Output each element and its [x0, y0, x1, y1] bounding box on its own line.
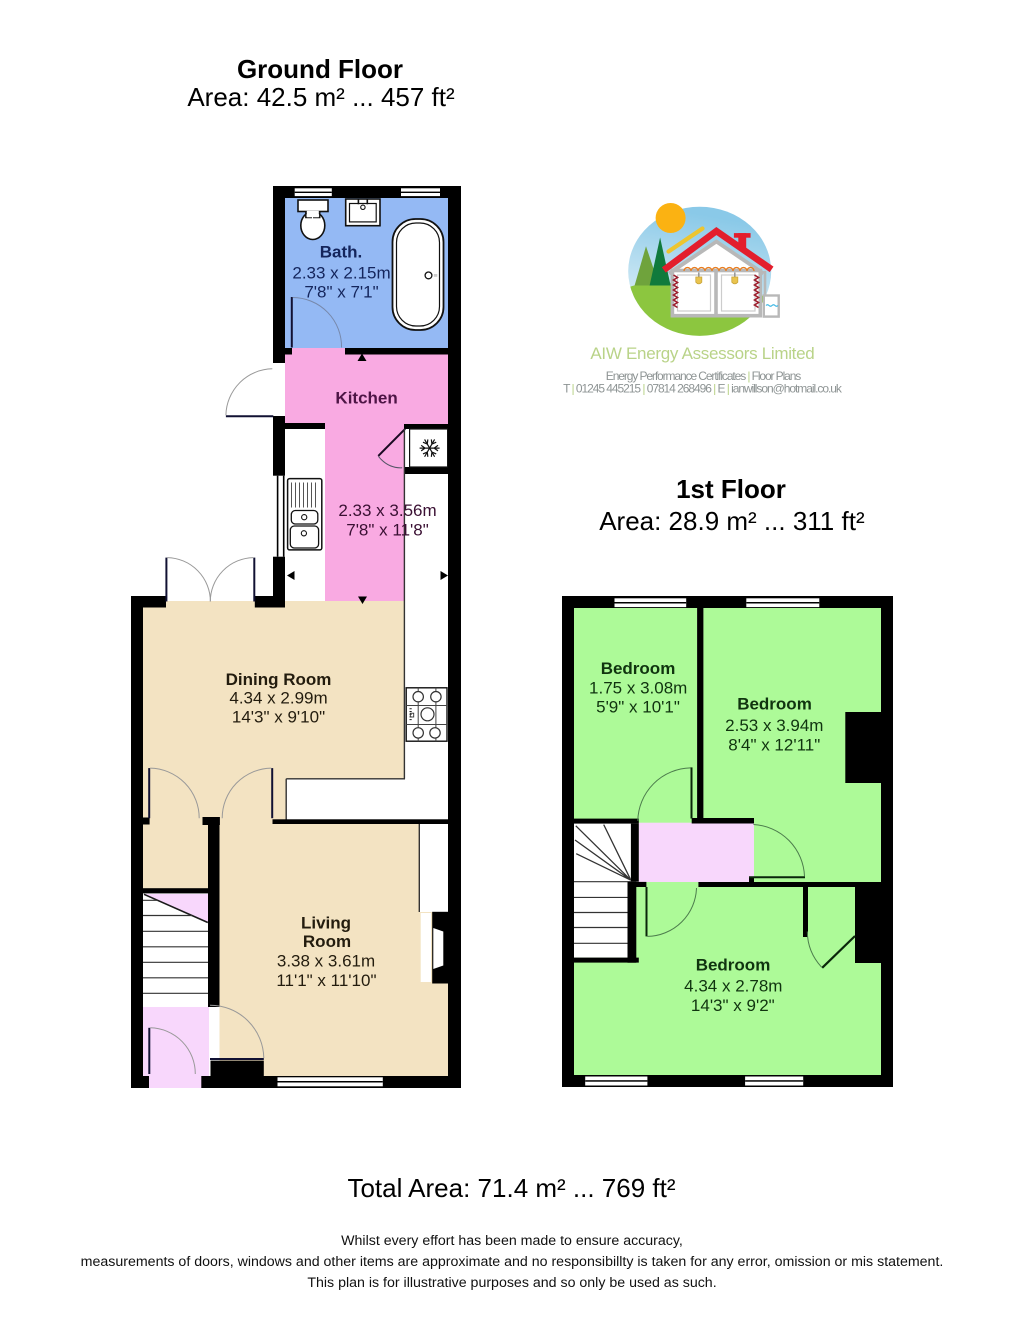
svg-text:Bedroom: Bedroom: [696, 956, 771, 975]
svg-text:Whilst every effort has been m: Whilst every effort has been made to ens…: [341, 1233, 683, 1249]
svg-text:2.53 x 3.94m: 2.53 x 3.94m: [725, 716, 823, 735]
svg-text:Area: 28.9 m² ... 311 ft²: Area: 28.9 m² ... 311 ft²: [599, 506, 865, 536]
svg-text:3.38 x 3.61m: 3.38 x 3.61m: [277, 952, 375, 971]
svg-text:measurements of doors, windows: measurements of doors, windows and other…: [81, 1254, 944, 1270]
svg-text:14'3" x 9'10": 14'3" x 9'10": [232, 708, 325, 727]
svg-text:8'4" x 12'11": 8'4" x 12'11": [728, 735, 820, 754]
svg-text:11'1" x 11'10": 11'1" x 11'10": [276, 971, 376, 990]
svg-text:5'9" x 10'1": 5'9" x 10'1": [596, 698, 680, 717]
svg-text:1.75 x 3.08m: 1.75 x 3.08m: [589, 678, 687, 697]
svg-text:14'3" x 9'2": 14'3" x 9'2": [691, 996, 775, 1015]
svg-text:Bedroom: Bedroom: [601, 659, 676, 678]
svg-text:Dining Room: Dining Room: [226, 670, 332, 689]
svg-text:Bath.: Bath.: [320, 243, 363, 262]
svg-text:7'8" x 11'8": 7'8" x 11'8": [346, 521, 429, 540]
svg-text:T | 01245 445215 | 07814 26849: T | 01245 445215 | 07814 268496 | E | ia…: [563, 382, 843, 396]
svg-text:This plan is for illustrative: This plan is for illustrative purposes a…: [307, 1275, 716, 1291]
svg-text:2.33 x 3.56m: 2.33 x 3.56m: [338, 501, 436, 520]
svg-text:AIW Energy Assessors Limited: AIW Energy Assessors Limited: [590, 344, 814, 363]
svg-text:7'8" x 7'1": 7'8" x 7'1": [304, 283, 378, 302]
svg-text:2.33 x 2.15m: 2.33 x 2.15m: [292, 264, 390, 283]
svg-text:Kitchen: Kitchen: [335, 389, 397, 408]
svg-text:Bedroom: Bedroom: [737, 695, 812, 714]
svg-text:Room: Room: [303, 932, 351, 951]
svg-text:Living: Living: [301, 914, 351, 933]
svg-text:Ground Floor: Ground Floor: [237, 54, 403, 84]
svg-text:4.34 x 2.99m: 4.34 x 2.99m: [229, 689, 327, 708]
svg-text:Area: 42.5 m² ... 457 ft²: Area: 42.5 m² ... 457 ft²: [187, 82, 455, 112]
svg-text:Total Area: 71.4 m² ... 769 ft: Total Area: 71.4 m² ... 769 ft²: [347, 1173, 675, 1203]
svg-text:1st Floor: 1st Floor: [676, 474, 786, 504]
svg-text:4.34 x 2.78m: 4.34 x 2.78m: [684, 977, 782, 996]
